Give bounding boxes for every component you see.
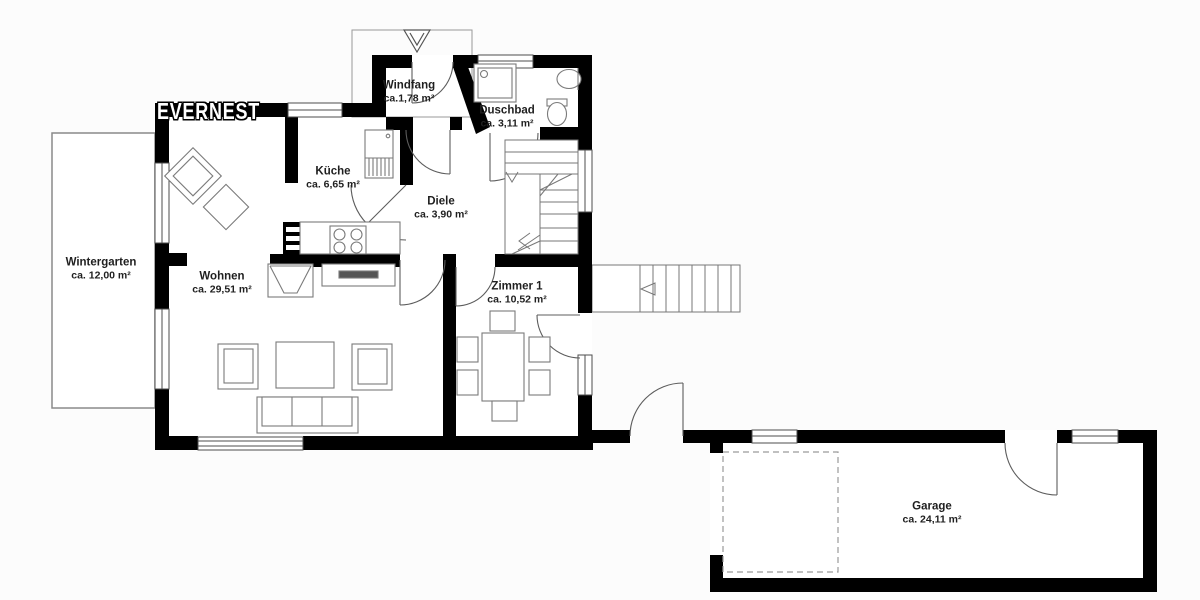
wall-bottom-1 bbox=[155, 436, 198, 450]
wall-right-3 bbox=[578, 395, 592, 450]
stove bbox=[330, 226, 366, 254]
refrigerator-cabinet bbox=[365, 130, 393, 178]
coffee-table bbox=[276, 342, 334, 388]
chair-right-2 bbox=[529, 370, 550, 395]
wall-zimmer1-top bbox=[495, 254, 582, 267]
floor-areas bbox=[155, 55, 1157, 592]
chair-left-1 bbox=[457, 337, 478, 362]
entrance-arrow-icon bbox=[404, 30, 430, 52]
shower bbox=[474, 64, 516, 102]
wall-windfang-top-1 bbox=[372, 55, 412, 68]
wall-garage-top-3 bbox=[1057, 430, 1072, 443]
fireplace bbox=[268, 264, 313, 297]
wall-left-2 bbox=[155, 243, 169, 309]
chair-bottom bbox=[492, 401, 517, 421]
tv bbox=[339, 271, 378, 278]
wall-duschbad-top bbox=[533, 55, 592, 68]
wall-top-right bbox=[342, 103, 372, 117]
garage-floor bbox=[710, 430, 1157, 592]
wintergarten-glass-wall bbox=[52, 133, 155, 408]
armchair-right bbox=[352, 344, 392, 390]
window-bottom-terrace bbox=[198, 437, 303, 450]
window-right-stair bbox=[578, 150, 592, 212]
interior-staircase bbox=[505, 140, 578, 254]
door-yard-gate bbox=[630, 383, 683, 436]
wall-garage-stub-bl bbox=[710, 555, 723, 578]
wall-garage-top-2 bbox=[797, 430, 1005, 443]
chair-left-2 bbox=[457, 370, 478, 395]
watermark-logo: EVERNEST bbox=[157, 98, 260, 125]
tv-sideboard bbox=[322, 264, 395, 286]
wall-house-garage-link bbox=[592, 430, 630, 443]
floor-plan: EVERNEST Wintergarten ca. 12,00 m² Wohne… bbox=[0, 0, 1200, 600]
sofa bbox=[257, 397, 358, 433]
window-garage-left bbox=[752, 430, 797, 443]
wall-windfang-diele-2 bbox=[450, 117, 462, 130]
exterior-staircase bbox=[592, 265, 740, 312]
armchair-left bbox=[218, 344, 258, 389]
window-right-zimmer1 bbox=[578, 355, 592, 395]
wintergarten-outline bbox=[52, 133, 155, 408]
wall-stub-wintergarten bbox=[169, 253, 187, 266]
wall-duschbad-bottom bbox=[540, 127, 592, 140]
wall-garage-stub-tl bbox=[710, 430, 723, 453]
dining-table bbox=[482, 333, 524, 401]
window-garage-right bbox=[1072, 430, 1118, 443]
wall-wohnen-zimmer1 bbox=[443, 254, 456, 450]
chair-right-1 bbox=[529, 337, 550, 362]
window-top-wohnen bbox=[288, 103, 342, 117]
window-left-lower bbox=[155, 309, 169, 389]
wall-garage-bottom bbox=[710, 578, 1157, 592]
chair-top bbox=[490, 311, 515, 331]
floor-plan-drawing bbox=[0, 0, 1200, 600]
wall-garage-right bbox=[1143, 430, 1157, 592]
toilet bbox=[547, 99, 567, 126]
wall-kueche-left bbox=[285, 117, 298, 183]
